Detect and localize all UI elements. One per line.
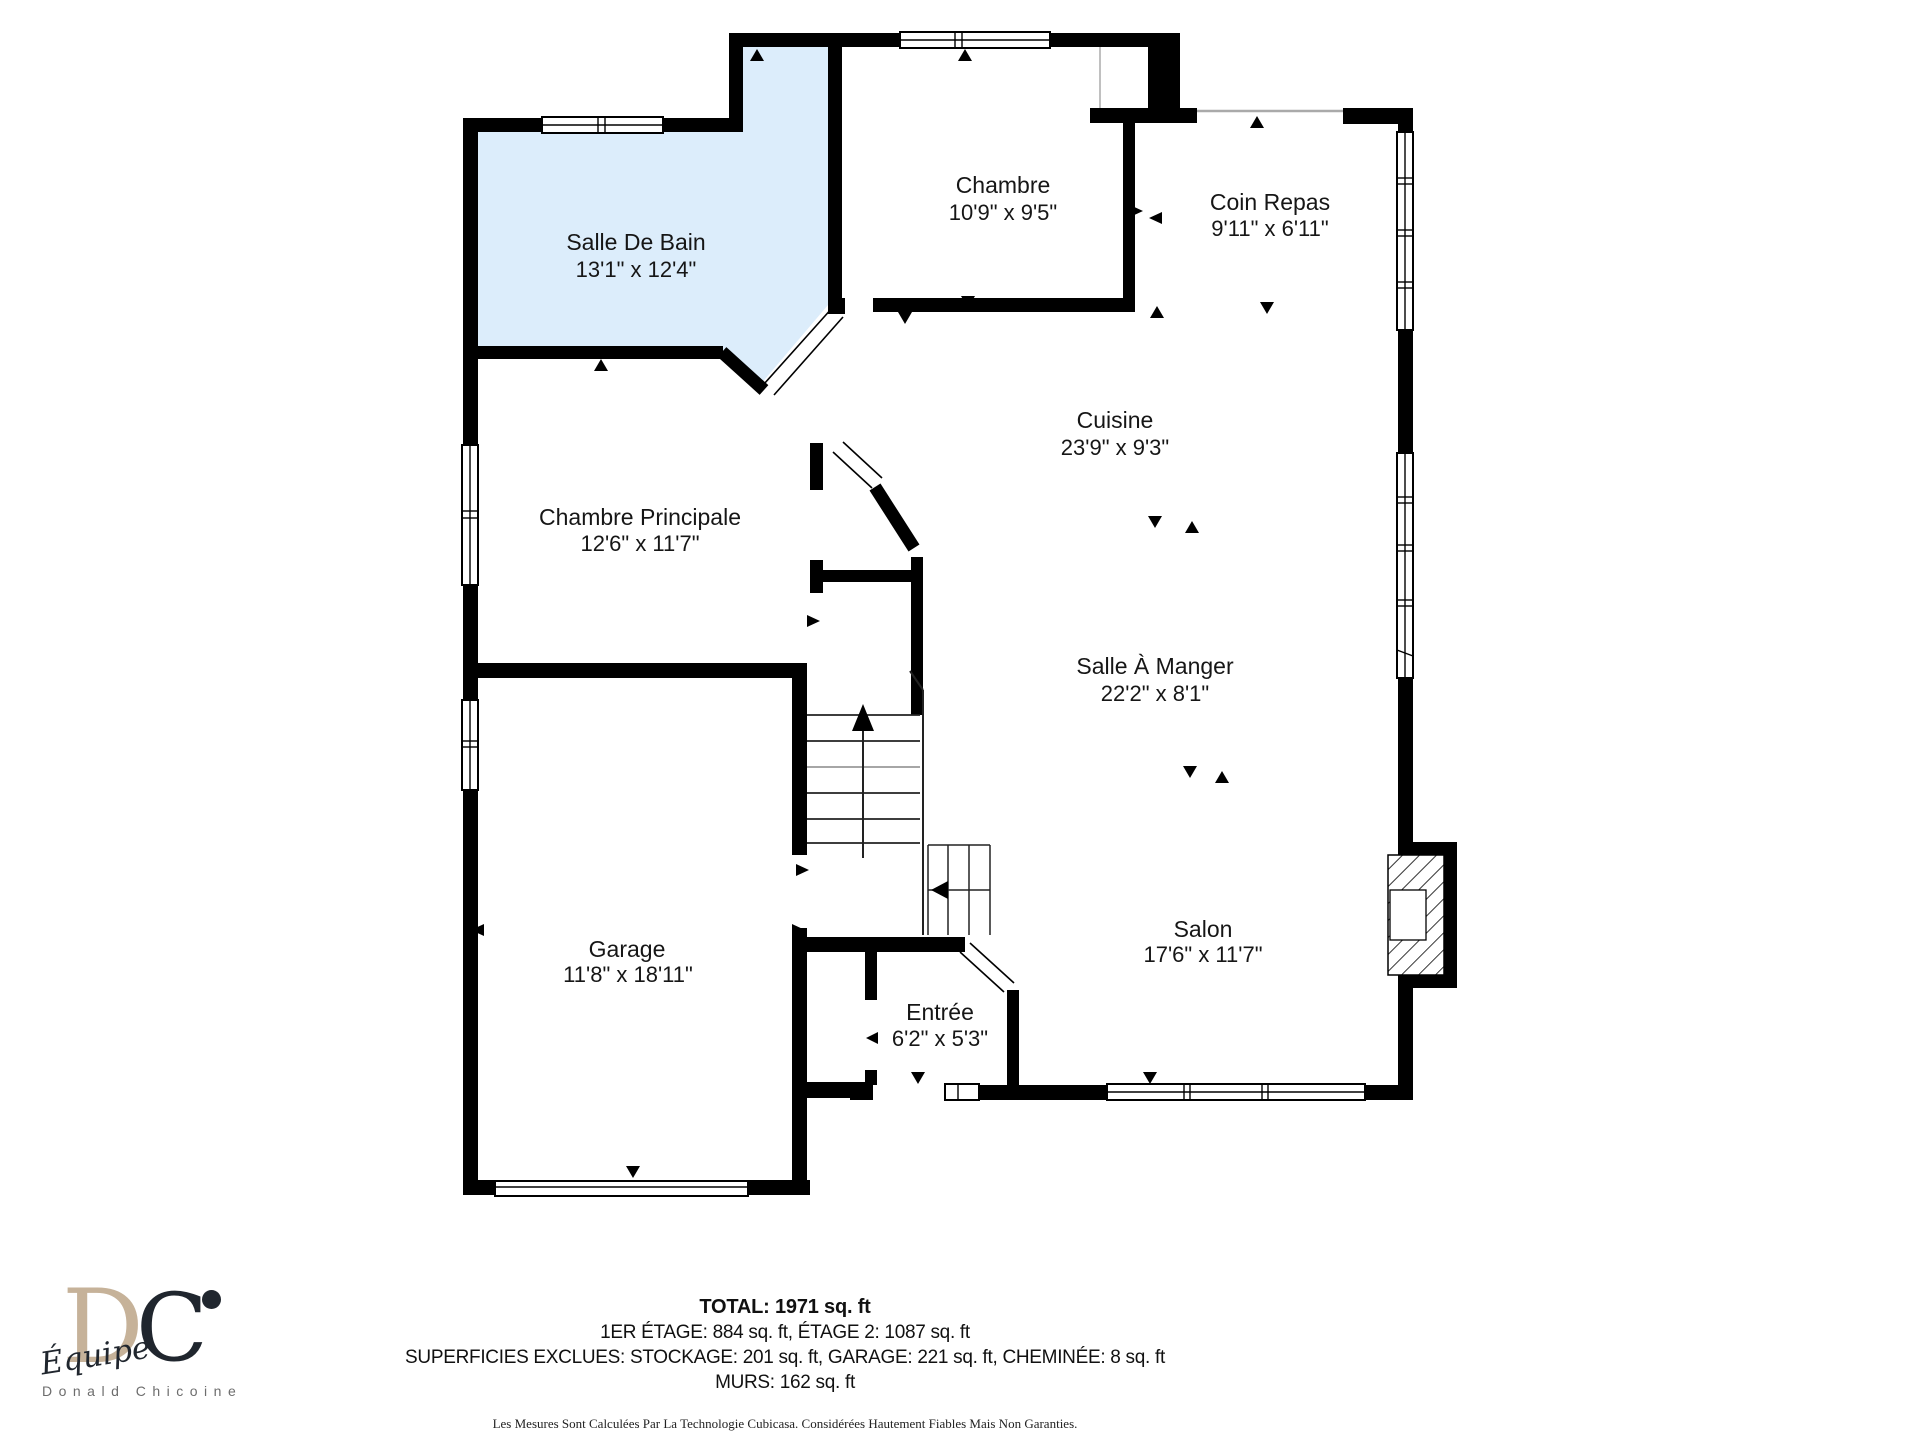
room-dims-entree: 6'2" x 5'3" [892,1026,988,1051]
fireplace [1388,855,1444,975]
garage-door [495,1181,748,1196]
room-dims-coin-repas: 9'11" x 6'11" [1211,216,1328,241]
room-dims-salle-a-manger: 22'2" x 8'1" [1101,681,1209,706]
room-label-chambre: Chambre [956,172,1051,198]
room-label-salon: Salon [1174,916,1233,942]
room-dims-cuisine: 23'9" x 9'3" [1061,435,1169,460]
total-area: TOTAL: 1971 sq. ft [135,1296,1435,1319]
room-label-garage: Garage [589,936,666,962]
area-summary: TOTAL: 1971 sq. ft 1ER ÉTAGE: 884 sq. ft… [135,1296,1435,1432]
room-dims-chambre: 10'9" x 9'5" [949,200,1057,225]
room-label-chambre-principale: Chambre Principale [539,504,741,530]
room-dims-garage: 11'8" x 18'11" [563,962,693,987]
bathroom-floor [478,47,828,385]
disclaimer-text: Les Mesures Sont Calculées Par La Techno… [135,1416,1435,1432]
walls-area: MURS: 162 sq. ft [135,1372,1435,1394]
room-dims-salle-de-bain: 13'1" x 12'4" [576,257,697,282]
floor-areas: 1ER ÉTAGE: 884 sq. ft, ÉTAGE 2: 1087 sq.… [135,1322,1435,1344]
brand-logo: D C Équipe Donald Chicoine [40,1282,260,1432]
room-label-cuisine: Cuisine [1077,407,1154,433]
stairs [807,671,990,935]
room-dims-chambre-principale: 12'6" x 11'7" [580,531,699,556]
logo-dot-icon [202,1290,221,1309]
room-label-salle-de-bain: Salle De Bain [566,229,705,255]
stairs-up-arrow [852,704,874,731]
excluded-areas: SUPERFICIES EXCLUES: STOCKAGE: 201 sq. f… [135,1347,1435,1369]
stairs-turn-arrow [931,881,948,899]
floorplan-drawing: Salle De Bain 13'1" x 12'4" Chambre 10'9… [0,0,1920,1440]
floorplan-page: Salle De Bain 13'1" x 12'4" Chambre 10'9… [0,0,1920,1440]
room-label-entree: Entrée [906,999,974,1025]
room-label-coin-repas: Coin Repas [1210,189,1330,215]
logo-agent-name: Donald Chicoine [42,1383,242,1399]
room-dims-salon: 17'6" x 11'7" [1143,942,1262,967]
room-label-salle-a-manger: Salle À Manger [1076,653,1234,679]
